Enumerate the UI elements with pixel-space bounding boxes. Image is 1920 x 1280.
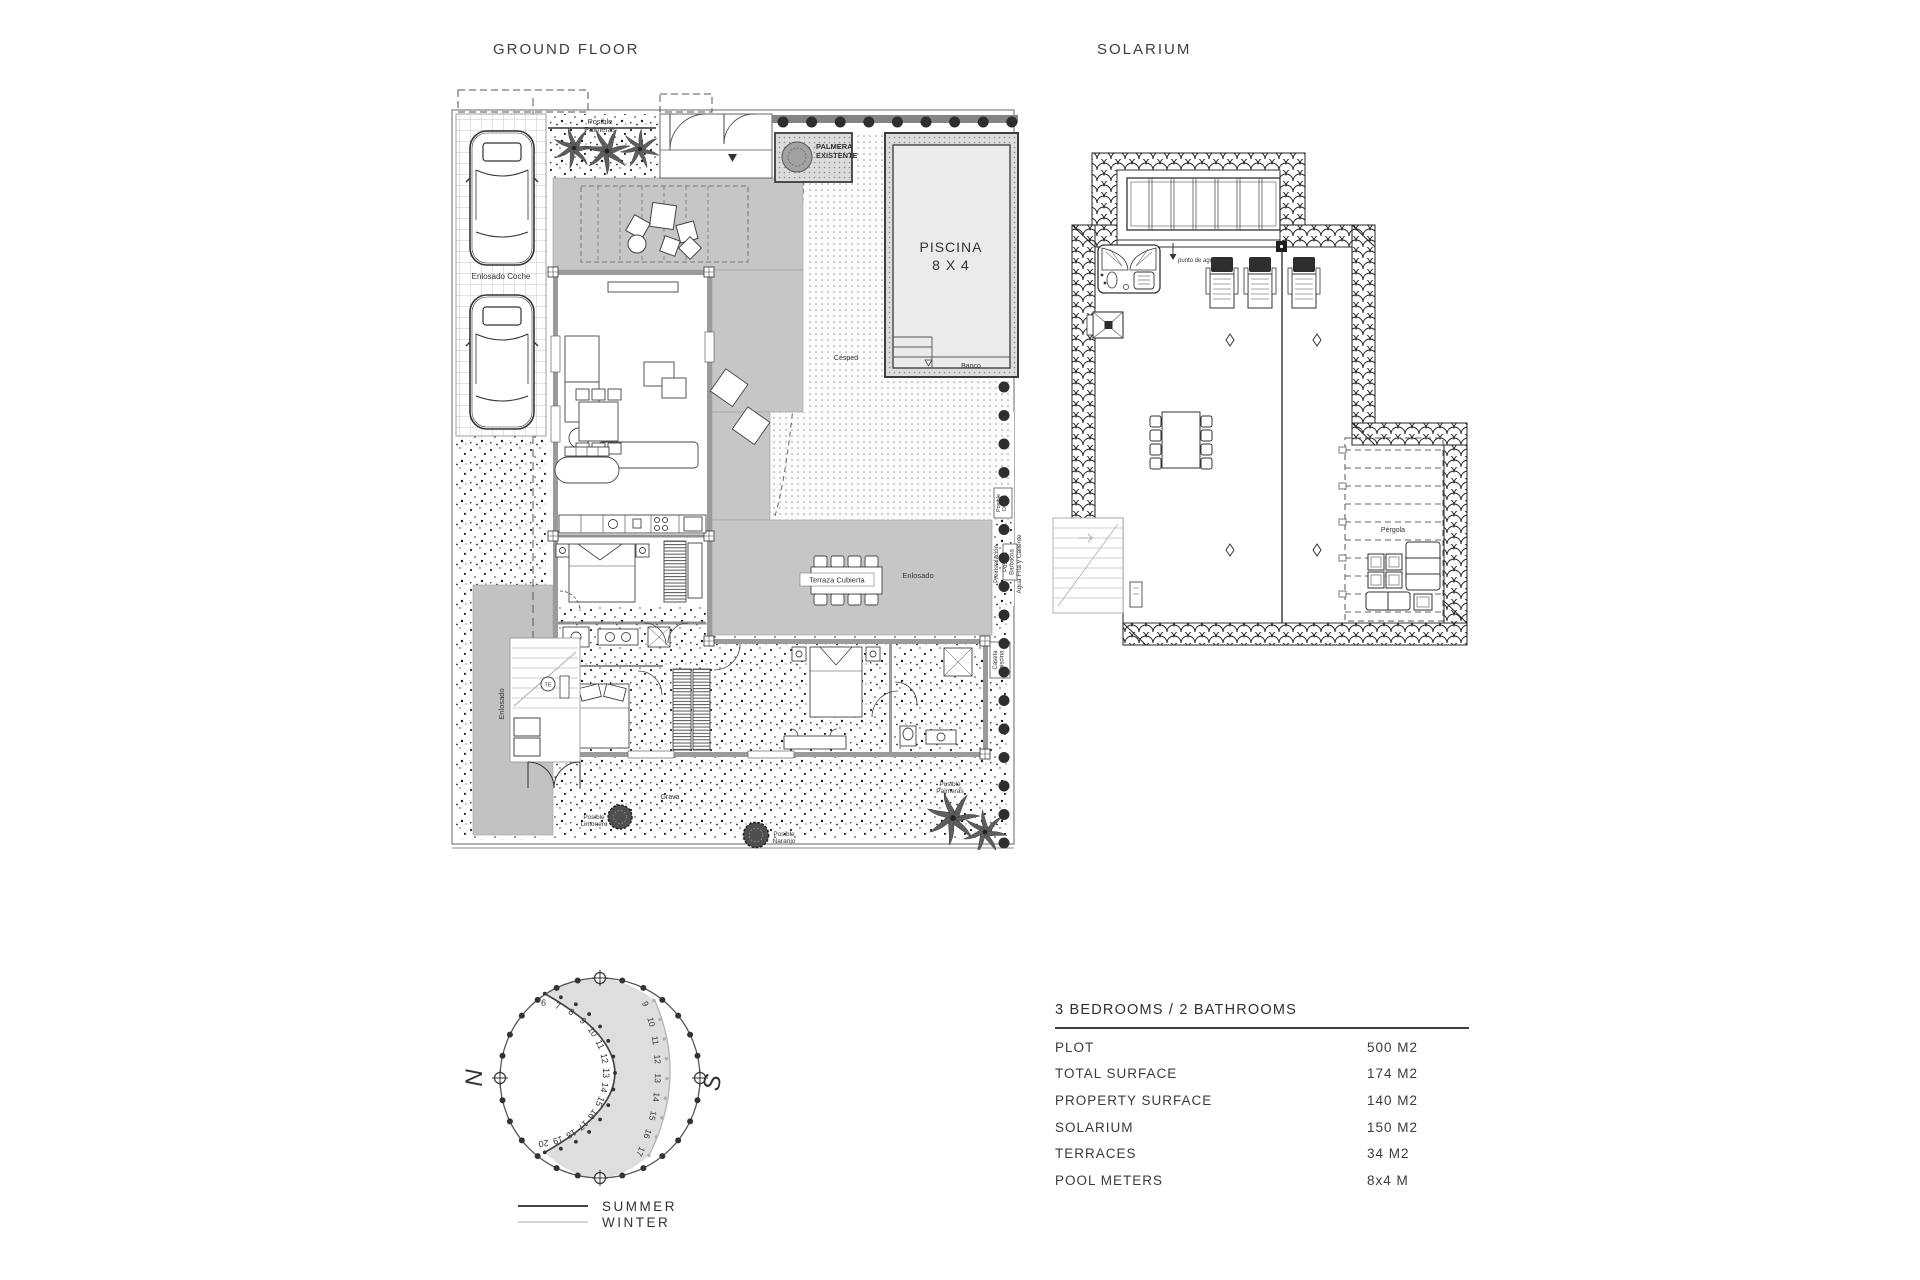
svg-text:7: 7 [554,1000,562,1011]
label-summer: SUMMER [602,1199,677,1214]
label-pergola: Pérgola [1381,527,1405,534]
lemon-tree-icon [608,805,632,829]
solarium-stairs [1053,518,1123,613]
spec-row-label: SOLARIUM [1055,1120,1367,1135]
svg-text:6: 6 [541,997,547,1008]
solarium-title: SOLARIUM [1097,41,1191,58]
spec-row-value: 150 M2 [1367,1120,1418,1135]
label-enlosado-entry: Enlosado [497,688,506,719]
label-caseta-piscina: Casetapiscina [993,650,1006,670]
svg-text:19: 19 [552,1134,565,1147]
spec-row-label: POOL METERS [1055,1173,1367,1188]
label-piscina: PISCINA [919,239,982,255]
spec-row: SOLARIUM150 M2 [1055,1114,1469,1141]
label-terraza-cubierta: Terraza Cubierta [809,576,865,585]
spec-row-label: PROPERTY SURFACE [1055,1093,1367,1108]
label-posible-palmeras-bottom: PosiblePalmeras [936,781,964,795]
spec-row-label: TOTAL SURFACE [1055,1066,1367,1081]
small-service-box [1130,582,1142,607]
spec-row-value: 8x4 M [1367,1173,1409,1188]
label-preinstalacion: Preinstalación [994,545,1000,583]
wall-junction [1276,241,1287,252]
label-banco: Banco [961,363,981,370]
spec-row: POOL METERS8x4 M [1055,1167,1469,1194]
floorplan-sheet: { "page": { "background": "#ffffff" }, "… [0,0,1920,1280]
svg-text:20: 20 [538,1138,549,1149]
svg-text:14: 14 [651,1092,662,1103]
svg-text:13: 13 [601,1068,611,1078]
spec-row: TERRACES34 M2 [1055,1140,1469,1167]
spec-row-label: PLOT [1055,1040,1367,1055]
spec-table-rows: PLOT500 M2TOTAL SURFACE174 M2PROPERTY SU… [1055,1034,1469,1194]
car-icon [466,131,538,265]
label-south: S [698,1072,727,1092]
orange-tree-icon [743,822,768,847]
spec-row-value: 34 M2 [1367,1146,1410,1161]
spec-row: PROPERTY SURFACE140 M2 [1055,1087,1469,1114]
label-winter: WINTER [602,1215,670,1230]
label-grava: Grava [660,794,679,801]
skylight [1117,170,1280,240]
label-posible-palmeras-top: PosiblePalmeras [584,117,616,134]
spec-row-value: 140 M2 [1367,1093,1418,1108]
label-posible-naranjo: PosibleNaranjo [773,831,796,845]
label-enlosado-coche: Enlosado Coche [472,272,531,281]
label-posible-ducha: PosibleDucha [996,494,1008,512]
svg-text:12: 12 [652,1054,663,1064]
existing-palm-icon [782,142,812,172]
label-enlosado-terrace: Enlosado [902,571,933,580]
label-palmera-existente: PALMERAEXISTENTE [816,142,858,160]
label-agua-fria: Agua Fría y Caliente [1016,534,1023,594]
spec-table-header: 3 BEDROOMS / 2 BATHROOMS [1055,1002,1469,1029]
svg-text:11: 11 [594,1038,607,1051]
spec-row: TOTAL SURFACE174 M2 [1055,1061,1469,1088]
sun-compass: 6789101112131415161718192091011121314151… [452,958,772,1270]
spec-row-label: TERRACES [1055,1146,1367,1161]
pool [885,133,1018,377]
label-north: N [461,1069,488,1087]
label-cesped: Césped [834,355,858,362]
ground-floor-plan: Enlosado Coche PosiblePalmeras PALMERAEX… [448,86,1024,850]
dining-set [576,389,621,454]
svg-text:13: 13 [653,1073,663,1083]
spec-row: PLOT500 M2 [1055,1034,1469,1061]
bedroom-1 [556,541,702,602]
jacuzzi [1098,245,1160,293]
label-posible-barbacoa: PosibleBarbacoa [1003,548,1016,574]
sun-loungers [1206,257,1320,308]
ground-floor-title: GROUND FLOOR [493,41,640,58]
svg-text:12: 12 [599,1052,611,1064]
label-posible-limonero: PosibleLimonero [580,814,607,828]
label-piscina-size: 8 X 4 [932,257,970,273]
spec-row-value: 174 M2 [1367,1066,1418,1081]
shower-unit [1087,312,1123,338]
label-te: TE [544,683,551,689]
car-icon [466,295,538,429]
solarium-dining-set [1150,412,1212,469]
label-punto-de-agua: punto de agua [1178,258,1217,264]
spec-row-value: 500 M2 [1367,1040,1418,1055]
solarium-plan: punto de agua Pérgola [1048,148,1480,652]
compass-legend: SUMMER WINTER [518,1199,677,1230]
spec-table: 3 BEDROOMS / 2 BATHROOMS PLOT500 M2TOTAL… [1055,1002,1469,1194]
vestibule [660,114,772,178]
svg-text:14: 14 [599,1082,611,1094]
